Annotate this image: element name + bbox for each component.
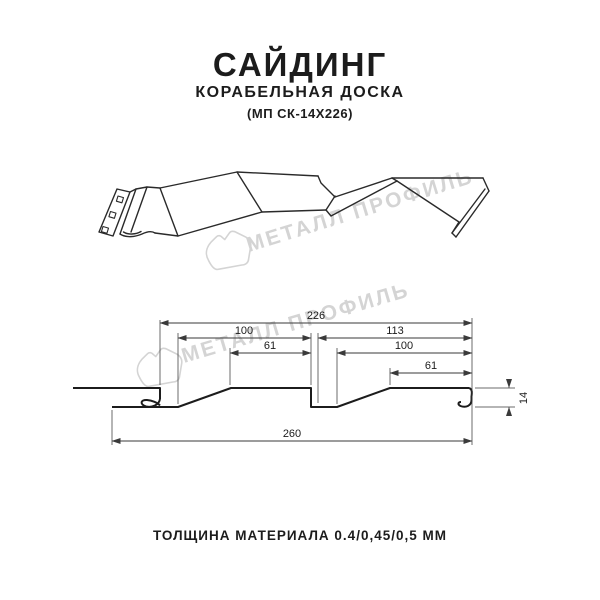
right-edge-hook [458, 388, 471, 407]
bottom-curl-inner [124, 232, 142, 235]
dim-overall-width: 260 [283, 428, 301, 440]
start-flange [73, 388, 160, 399]
dim-right-module: 113 [386, 325, 404, 337]
step-groove-far [318, 176, 335, 197]
material-thickness-note: ТОЛЩИНА МАТЕРИАЛА 0.4/0,45/0,5 ММ [0, 528, 600, 543]
nail-hole-icon [116, 196, 123, 203]
dim-total-coverage: 226 [307, 310, 325, 322]
nail-hole-icon [109, 212, 116, 219]
lock-fold-edge [131, 187, 147, 232]
watermark-lower: МЕТАЛЛ ПРОФИЛЬ [133, 279, 412, 391]
dim-profile-height: 14 [518, 392, 530, 404]
cross-section-profile [73, 388, 472, 407]
drawing-canvas: МЕТАЛЛ ПРОФИЛЬ МЕТАЛЛ ПРОФИЛЬ [0, 0, 600, 600]
product-drawing-page: САЙДИНГ КОРАБЕЛЬНАЯ ДОСКА (МП СК-14Х226)… [0, 0, 600, 600]
end-cap-edge [483, 178, 489, 191]
dim-right-module-inner: 100 [395, 340, 413, 352]
dim-left-flat: 61 [264, 340, 276, 352]
board1-rise-face [160, 172, 262, 236]
end-hook-join [452, 222, 459, 233]
nail-hole-icon [101, 227, 108, 234]
profile-body [112, 388, 469, 407]
end-hook-bottom [452, 233, 456, 237]
dim-left-module: 100 [235, 325, 253, 337]
end-hook-outer [456, 191, 489, 237]
lock-curl [142, 399, 160, 407]
board1-top-far-edge [237, 172, 318, 176]
dim-right-flat: 61 [425, 360, 437, 372]
valley-edge [155, 233, 178, 236]
